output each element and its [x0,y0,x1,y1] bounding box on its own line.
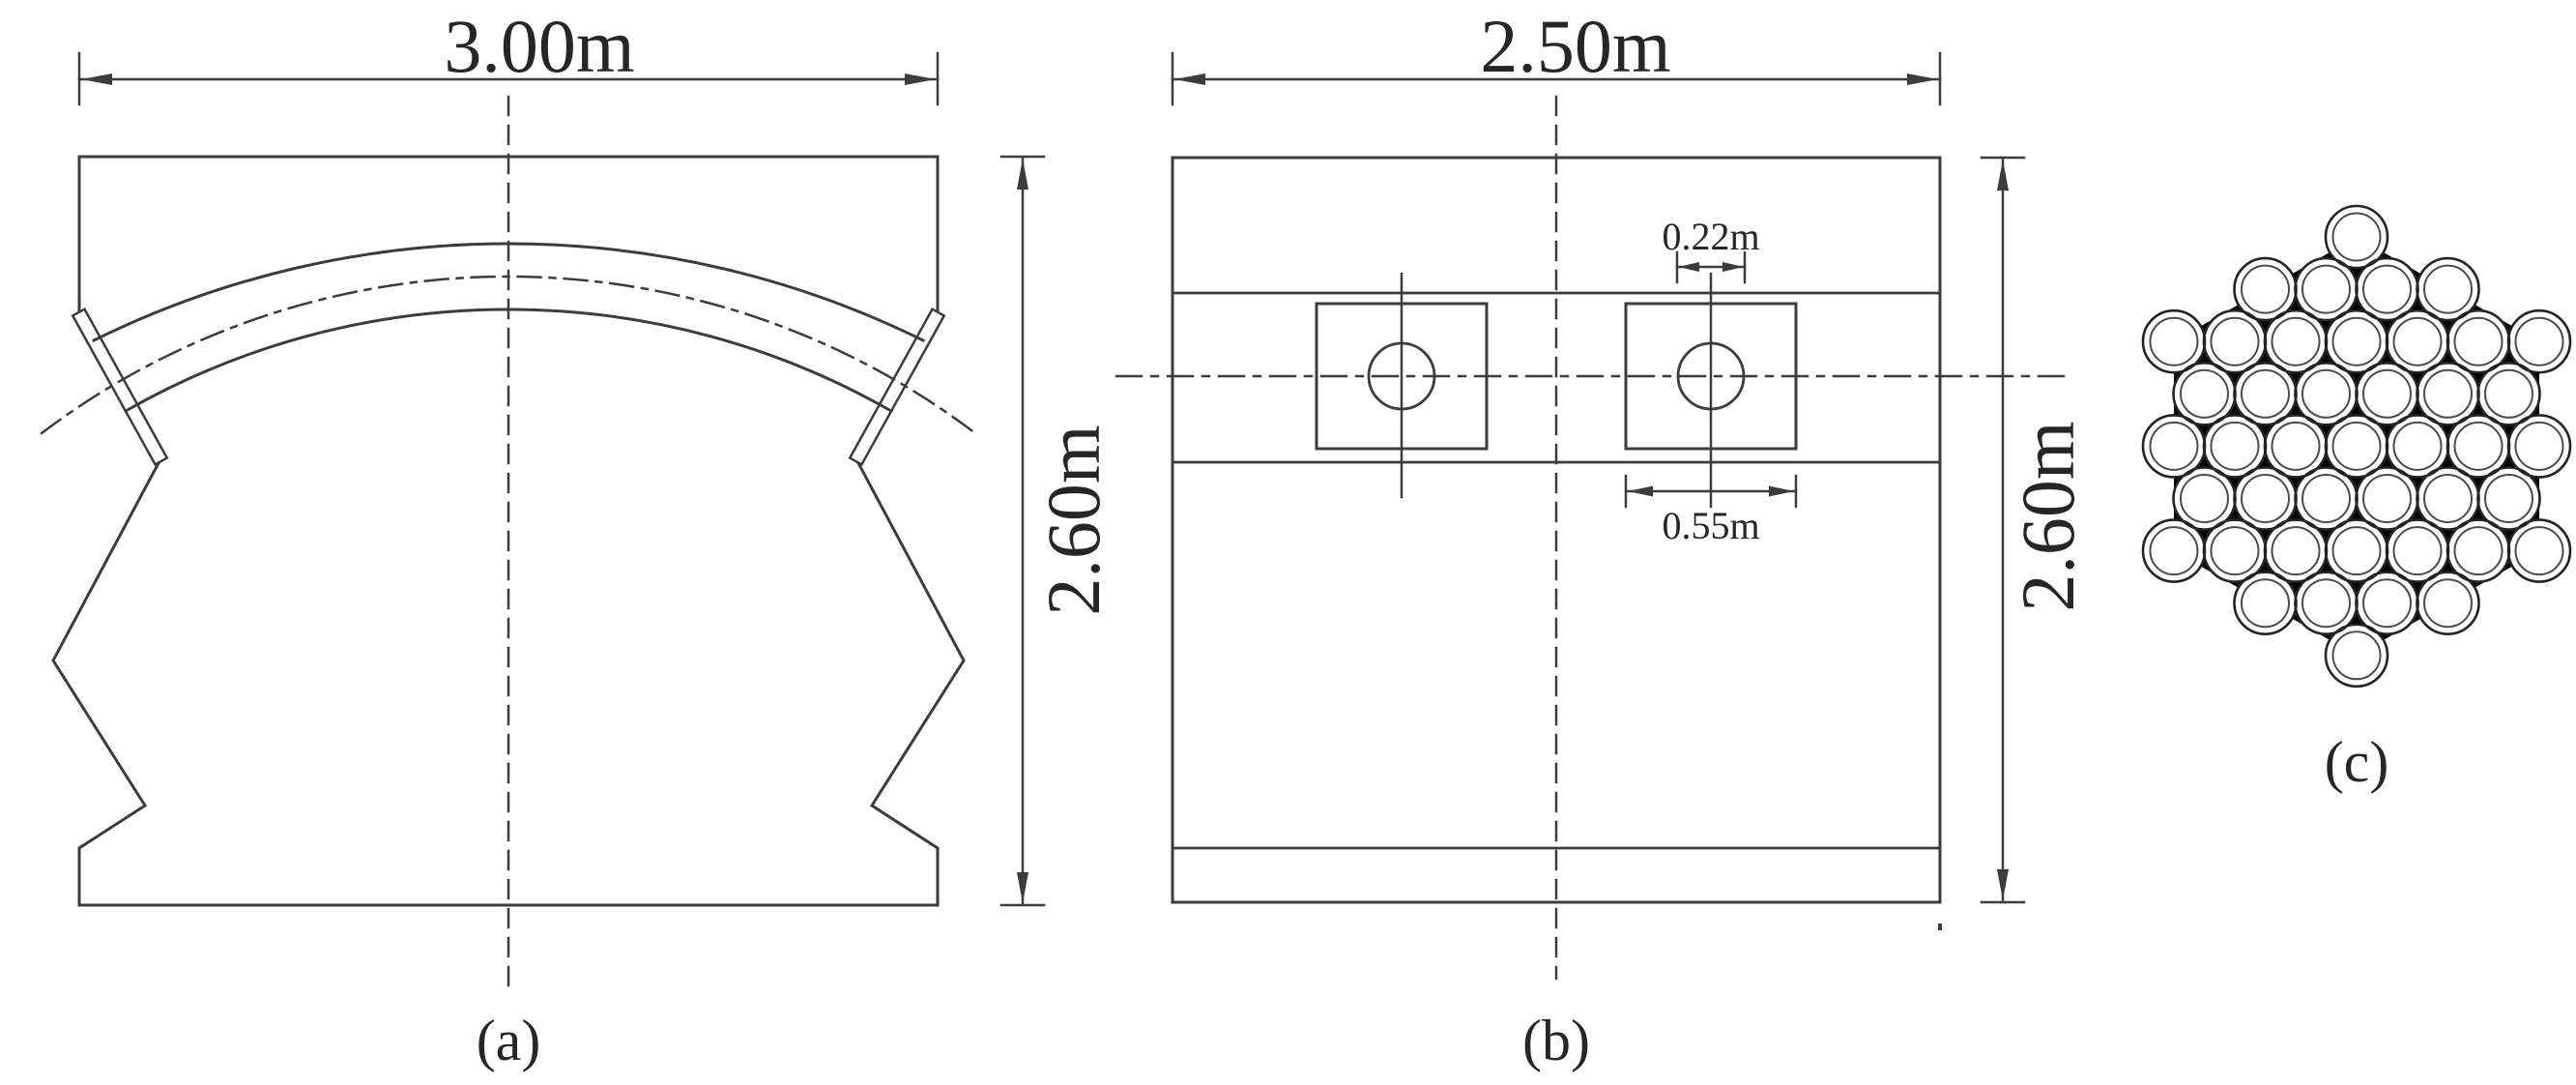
panel-a-label: (a) [477,1009,541,1072]
arrowhead-right [1722,262,1744,272]
body-rect [1172,158,1940,902]
arrowhead-left [1678,262,1699,272]
arrowhead-down [1997,869,2009,900]
arrowhead-down [1017,872,1028,903]
arrowhead-left [1628,486,1653,497]
arrowhead-right [1907,73,1938,85]
dim-a-height-label: 2.60m [1031,425,1115,615]
panel-b-anchor-elevation: 2.50m 0.22m [1116,4,2090,1072]
dim-a-height: 2.60m [1001,157,1115,905]
arrowhead-left [1174,73,1205,85]
anchor-block-right [1626,274,1796,507]
dim-b-anchor-label: 0.55m [1662,504,1759,547]
panel-a-arch-section: 3.00m 2.60m (a) [42,4,1115,1072]
technical-drawing: 3.00m 2.60m (a) [0,0,2576,1085]
dim-b-hole: 0.22m [1662,215,1759,282]
dim-a-width-label: 3.00m [444,4,634,88]
artifact-dot [1938,924,1942,930]
dim-b-width: 2.50m [1172,4,1940,104]
panel-c-strand-bundle: (c) [2143,206,2570,794]
arrowhead-left [81,73,112,85]
dim-b-height-label: 2.60m [2006,421,2090,611]
bearing-plate-left [72,309,167,465]
dim-a-width: 3.00m [79,4,938,104]
dim-b-width-label: 2.50m [1480,4,1670,88]
panel-b-label: (b) [1522,1009,1590,1072]
strand-bundle [2143,206,2570,687]
arrowhead-right [905,73,936,85]
dim-b-height: 2.60m [1982,158,2090,902]
arrowhead-up [1997,160,2009,191]
arrowhead-right [1769,486,1794,497]
bearing-plate-right [850,309,944,465]
arrowhead-up [1017,159,1028,190]
panel-c-label: (c) [2325,730,2389,794]
